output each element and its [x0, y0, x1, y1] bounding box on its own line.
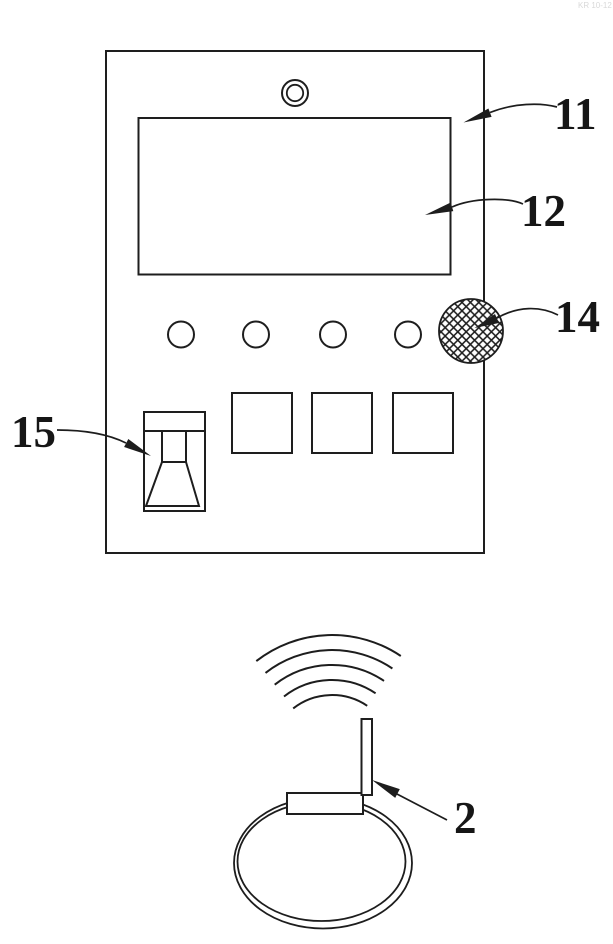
svg-text:15: 15: [11, 407, 56, 457]
svg-text:11: 11: [554, 89, 597, 139]
svg-text:14: 14: [555, 292, 600, 342]
svg-text:2: 2: [454, 793, 477, 843]
svg-text:12: 12: [521, 186, 566, 236]
svg-text:KR 10-12: KR 10-12: [578, 1, 612, 10]
